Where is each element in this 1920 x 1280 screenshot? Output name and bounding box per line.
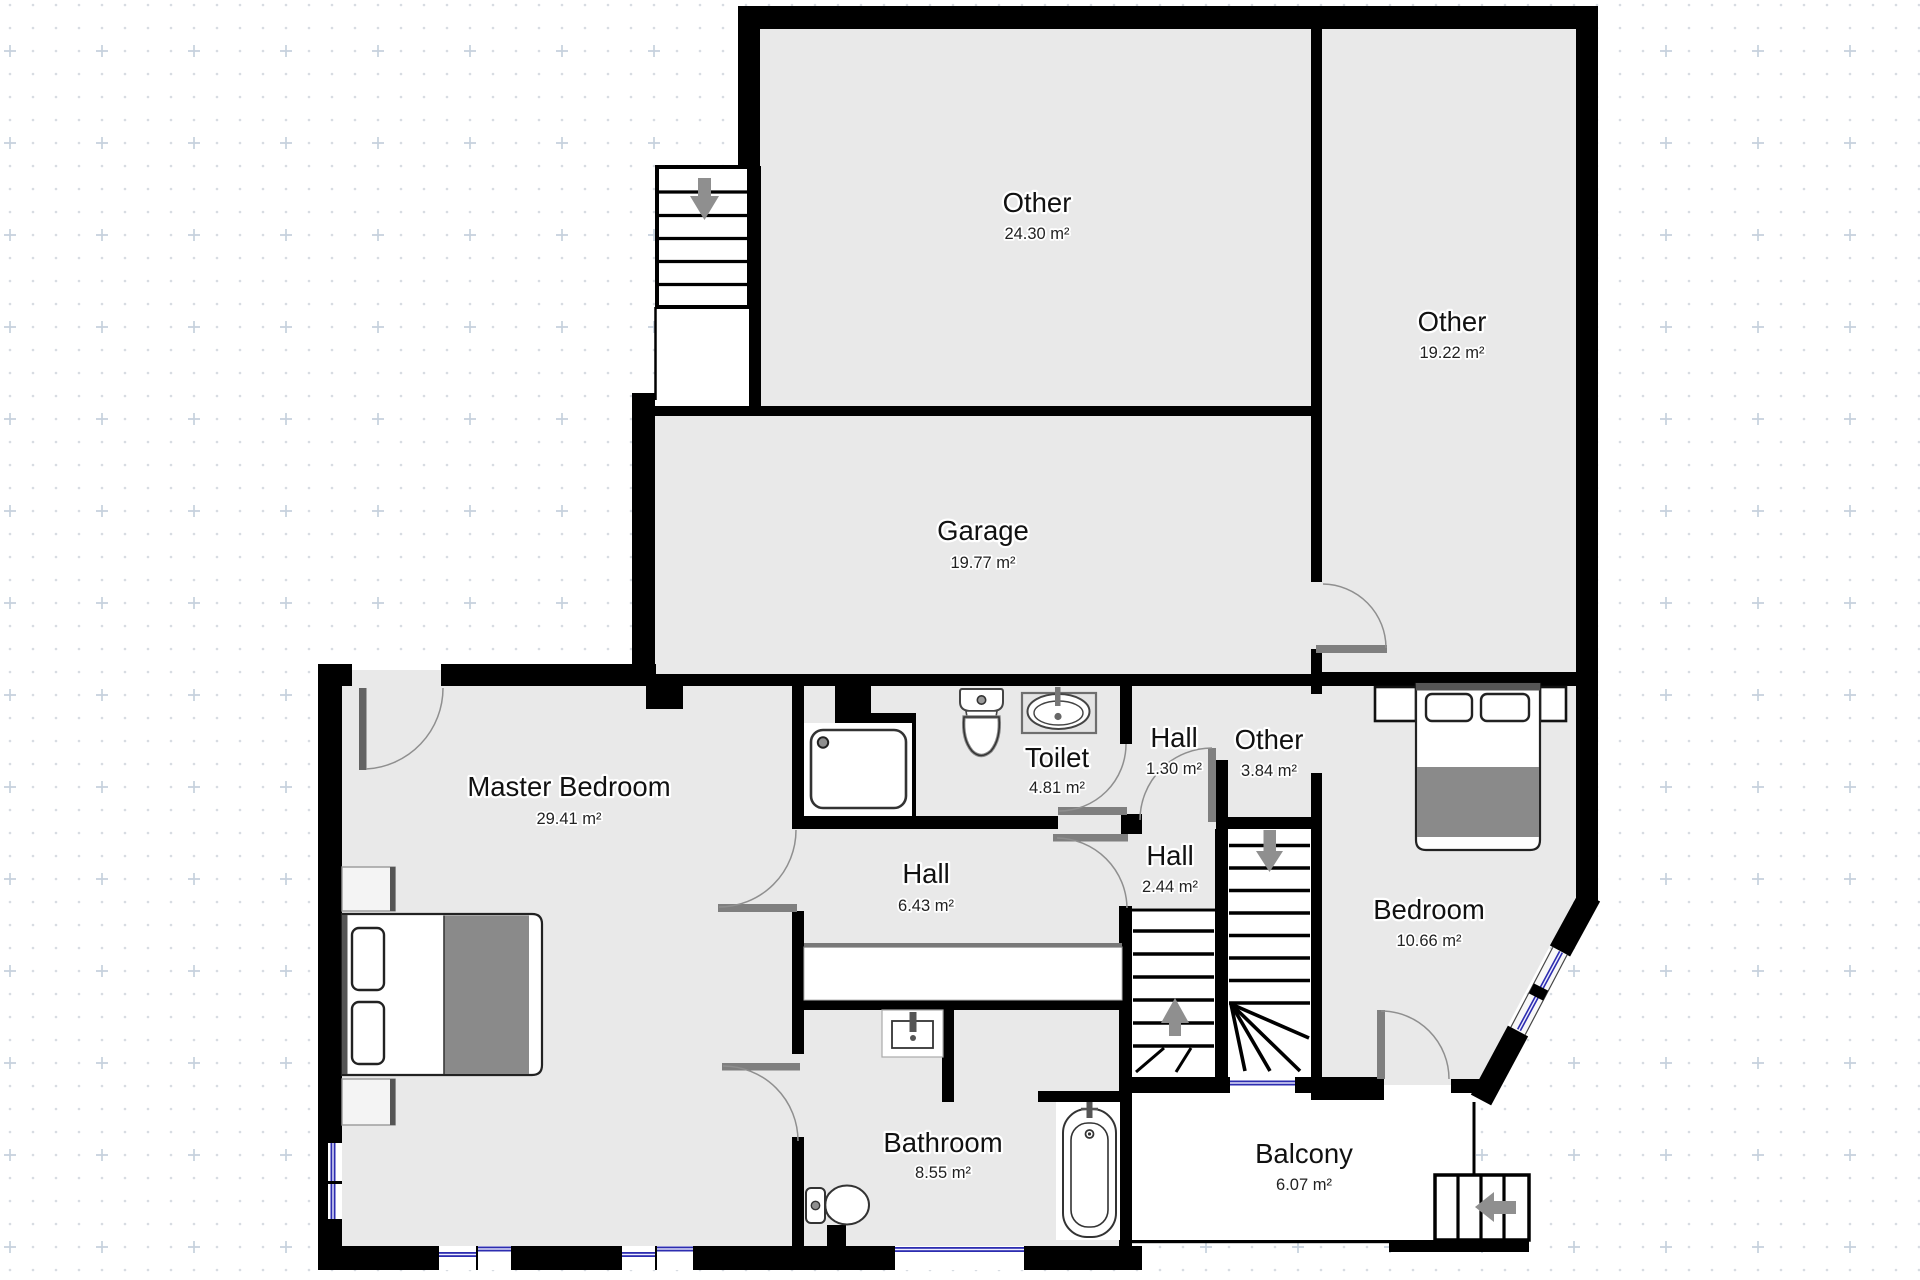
svg-text:4.81 m²: 4.81 m² <box>1029 779 1085 797</box>
svg-text:Bathroom: Bathroom <box>883 1127 1002 1158</box>
svg-text:Other: Other <box>1235 724 1304 755</box>
svg-text:Hall: Hall <box>1150 722 1197 753</box>
svg-text:19.22 m²: 19.22 m² <box>1419 344 1485 362</box>
svg-text:2.44 m²: 2.44 m² <box>1142 878 1198 896</box>
svg-text:Other: Other <box>1418 306 1487 337</box>
svg-text:6.07 m²: 6.07 m² <box>1276 1176 1332 1194</box>
svg-text:Hall: Hall <box>902 858 949 889</box>
svg-text:3.84 m²: 3.84 m² <box>1241 762 1297 780</box>
svg-text:1.30 m²: 1.30 m² <box>1146 760 1202 778</box>
svg-text:Hall: Hall <box>1146 840 1193 871</box>
svg-text:10.66 m²: 10.66 m² <box>1396 932 1462 950</box>
svg-text:6.43 m²: 6.43 m² <box>898 897 954 915</box>
svg-text:8.55 m²: 8.55 m² <box>915 1164 971 1182</box>
svg-text:Toilet: Toilet <box>1025 742 1090 773</box>
svg-text:Master Bedroom: Master Bedroom <box>467 771 670 802</box>
svg-text:Garage: Garage <box>937 515 1029 546</box>
svg-text:19.77 m²: 19.77 m² <box>950 554 1016 572</box>
svg-text:Balcony: Balcony <box>1255 1138 1353 1169</box>
svg-text:Bedroom: Bedroom <box>1373 894 1485 925</box>
svg-text:24.30 m²: 24.30 m² <box>1004 225 1070 243</box>
svg-text:29.41 m²: 29.41 m² <box>536 810 602 828</box>
svg-text:Other: Other <box>1003 187 1072 218</box>
